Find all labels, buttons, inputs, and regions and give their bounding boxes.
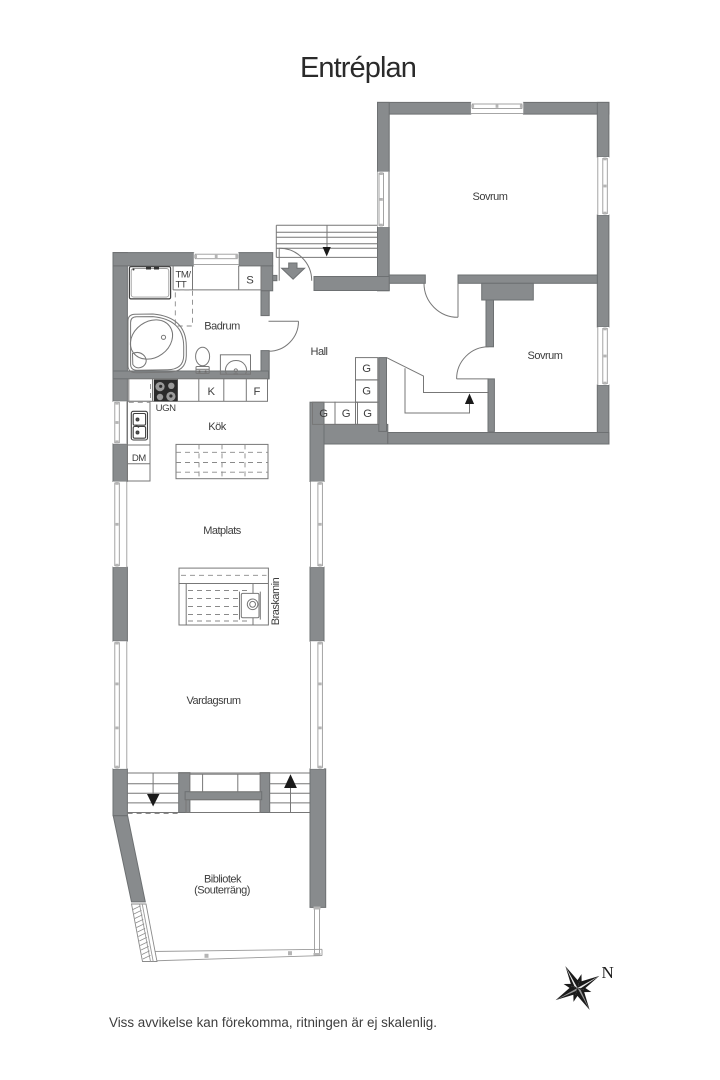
svg-text:(Souterräng): (Souterräng)	[194, 885, 250, 897]
svg-text:Badrum: Badrum	[204, 321, 240, 333]
svg-text:Braskamin: Braskamin	[270, 577, 282, 625]
svg-text:Sovrum: Sovrum	[528, 350, 563, 362]
svg-text:G: G	[362, 386, 371, 398]
svg-text:Vardagsrum: Vardagsrum	[186, 695, 240, 707]
svg-text:TT: TT	[176, 280, 187, 291]
svg-text:G: G	[362, 363, 371, 375]
svg-text:N: N	[602, 963, 614, 982]
svg-text:DM: DM	[132, 453, 146, 464]
svg-text:UGN: UGN	[156, 403, 176, 414]
svg-text:G: G	[342, 408, 351, 420]
svg-text:G: G	[319, 408, 328, 420]
svg-text:S: S	[246, 274, 254, 286]
svg-text:K: K	[208, 386, 216, 398]
svg-text:F: F	[253, 386, 260, 398]
svg-text:Sovrum: Sovrum	[473, 191, 508, 203]
svg-text:Kök: Kök	[208, 421, 226, 433]
svg-text:G: G	[363, 408, 372, 420]
svg-text:Entréplan: Entréplan	[300, 52, 416, 84]
svg-text:Hall: Hall	[311, 346, 328, 358]
svg-text:Viss avvikelse kan förekomma,: Viss avvikelse kan förekomma, ritningen …	[109, 1015, 437, 1030]
svg-text:Matplats: Matplats	[203, 525, 242, 537]
